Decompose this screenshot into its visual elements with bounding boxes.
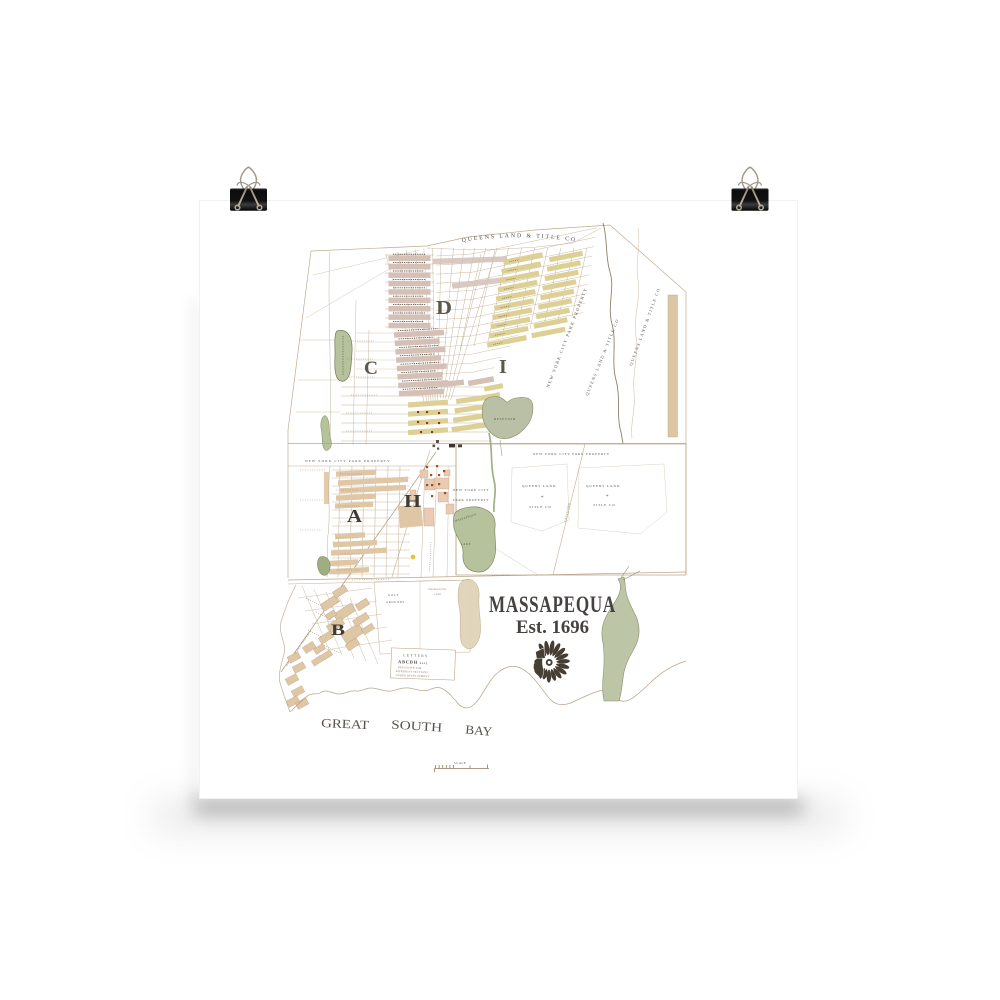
svg-text:QUEENS LAND & TITLE CO: QUEENS LAND & TITLE CO: [628, 287, 661, 367]
svg-text:ABCDH etc): ABCDH etc): [398, 659, 428, 665]
svg-text:NISSEQUOGUE: NISSEQUOGUE: [428, 589, 447, 591]
svg-text:MASSAPEQUA: MASSAPEQUA: [489, 592, 616, 617]
svg-text:H: H: [404, 491, 421, 511]
svg-text:NEW YORK CITY: NEW YORK CITY: [453, 488, 489, 492]
svg-text:B: B: [331, 622, 345, 639]
svg-text:A: A: [347, 506, 362, 526]
svg-text:*: *: [541, 496, 544, 501]
svg-text:*: *: [606, 495, 609, 500]
svg-text:I: I: [499, 356, 507, 378]
svg-text:GROUNDS: GROUNDS: [386, 600, 405, 604]
svg-text:TITLE CO: TITLE CO: [529, 505, 552, 509]
svg-text:CONTINUED: CONTINUED: [564, 502, 571, 522]
svg-text:C: C: [364, 358, 378, 379]
svg-text:QUEENS LAND & TITLE CO: QUEENS LAND & TITLE CO: [461, 233, 577, 244]
svg-text:+ CLUB: + CLUB: [432, 594, 441, 596]
svg-text:RESEVOIR: RESEVOIR: [494, 417, 516, 421]
svg-text:LAKE: LAKE: [461, 543, 471, 546]
svg-text:D: D: [436, 297, 452, 319]
svg-text:GOLF: GOLF: [388, 593, 399, 597]
svg-text:SCALE: SCALE: [454, 761, 466, 765]
svg-text:Est. 1696: Est. 1696: [516, 617, 589, 638]
svg-text:PARK PROPERTY: PARK PROPERTY: [453, 498, 489, 502]
svg-text:QUEENS LAND & TITLE CO: QUEENS LAND & TITLE CO: [584, 318, 620, 397]
svg-text:NEW YORK CITY PARK PROPERTY: NEW YORK CITY PARK PROPERTY: [533, 452, 610, 456]
svg-text:QUEENS LAND: QUEENS LAND: [586, 484, 620, 488]
svg-text:QUEENS LAND: QUEENS LAND: [522, 484, 556, 488]
svg-text:NEW YORK CITY PARK PROPERTY: NEW YORK CITY PARK PROPERTY: [305, 459, 391, 463]
svg-text:SOUTH: SOUTH: [391, 718, 443, 735]
svg-text:GREAT: GREAT: [321, 716, 370, 732]
svg-text:BAY: BAY: [465, 723, 493, 739]
svg-text:TITLE CO: TITLE CO: [593, 503, 616, 507]
